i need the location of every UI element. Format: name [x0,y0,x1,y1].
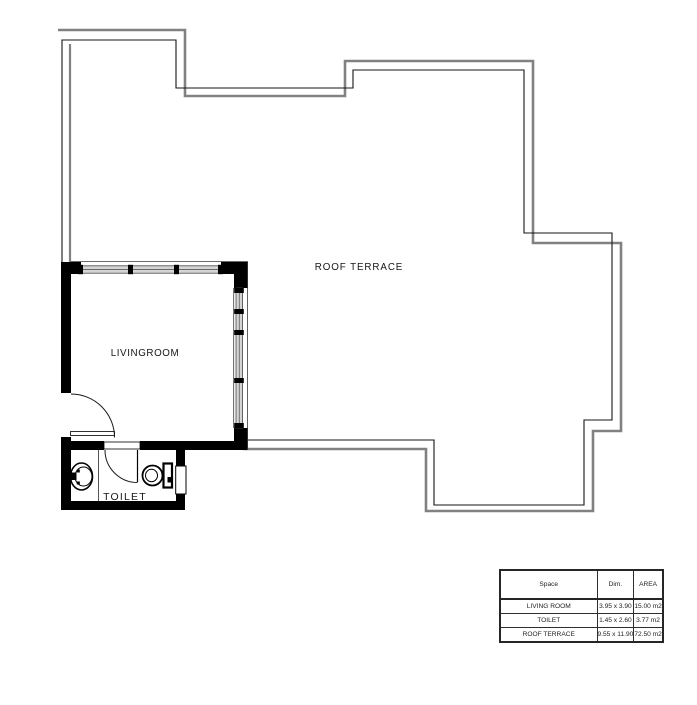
livingroom-door-arc [71,394,115,438]
table-header-space: Space [500,570,597,599]
wall-toilet-top-right [140,441,248,450]
wall-right-top-block [234,262,248,288]
toilet-door-arc [105,450,138,483]
table-row-toilet: TOILET 1.45 x 2.60 3.77 m2 [500,614,663,628]
area-schedule: Space Dim. AREA LIVING ROOM 3.95 x 3.90 … [499,569,664,643]
cell-area: 72.50 m2 [634,628,663,643]
room-label-roof-terrace: ROOF TERRACE [315,262,403,273]
room-label-toilet: TOILET [103,491,147,503]
toilet-door [104,442,140,483]
cell-area: 15.00 m2 [634,599,663,614]
wall-toilet-top-left [61,441,104,450]
cell-dim: 1.45 x 2.60 [597,614,634,628]
room-label-livingroom: LIVINGROOM [111,348,180,359]
washbasin [71,463,93,490]
table-row-roof-terrace: ROOF TERRACE 9.55 x 11.90 72.50 m2 [500,628,663,643]
table-header-row: Space Dim. AREA [500,570,663,599]
area-table: Space Dim. AREA LIVING ROOM 3.95 x 3.90 … [499,569,664,643]
cell-space: TOILET [500,614,597,628]
cell-space: LIVING ROOM [500,599,597,614]
wall-left [61,262,71,393]
cell-dim: 3.95 x 3.90 [597,599,634,614]
wc-cistern [164,464,173,488]
livingroom-door [71,394,115,438]
cell-dim: 9.55 x 11.90 [597,628,634,643]
table-header-area: AREA [634,570,663,599]
washbasin-tap [71,473,77,481]
wall-toilet-right-upper [176,450,185,466]
cell-space: ROOF TERRACE [500,628,597,643]
toilet-door-frame [104,442,140,449]
livingroom-door-leaf [71,432,115,436]
toilet-window [176,466,186,494]
livingroom-right-window [234,262,248,450]
table-row-living-room: LIVING ROOM 3.95 x 3.90 15.00 m2 [500,599,663,614]
floor-plan-page: ROOF TERRACE LIVINGROOM TOILET Space Dim… [0,0,697,705]
wall-toilet-right-lower [176,494,185,510]
table-header-dim: Dim. [597,570,634,599]
wc-toilet [143,464,173,488]
cell-area: 3.77 m2 [634,614,663,628]
